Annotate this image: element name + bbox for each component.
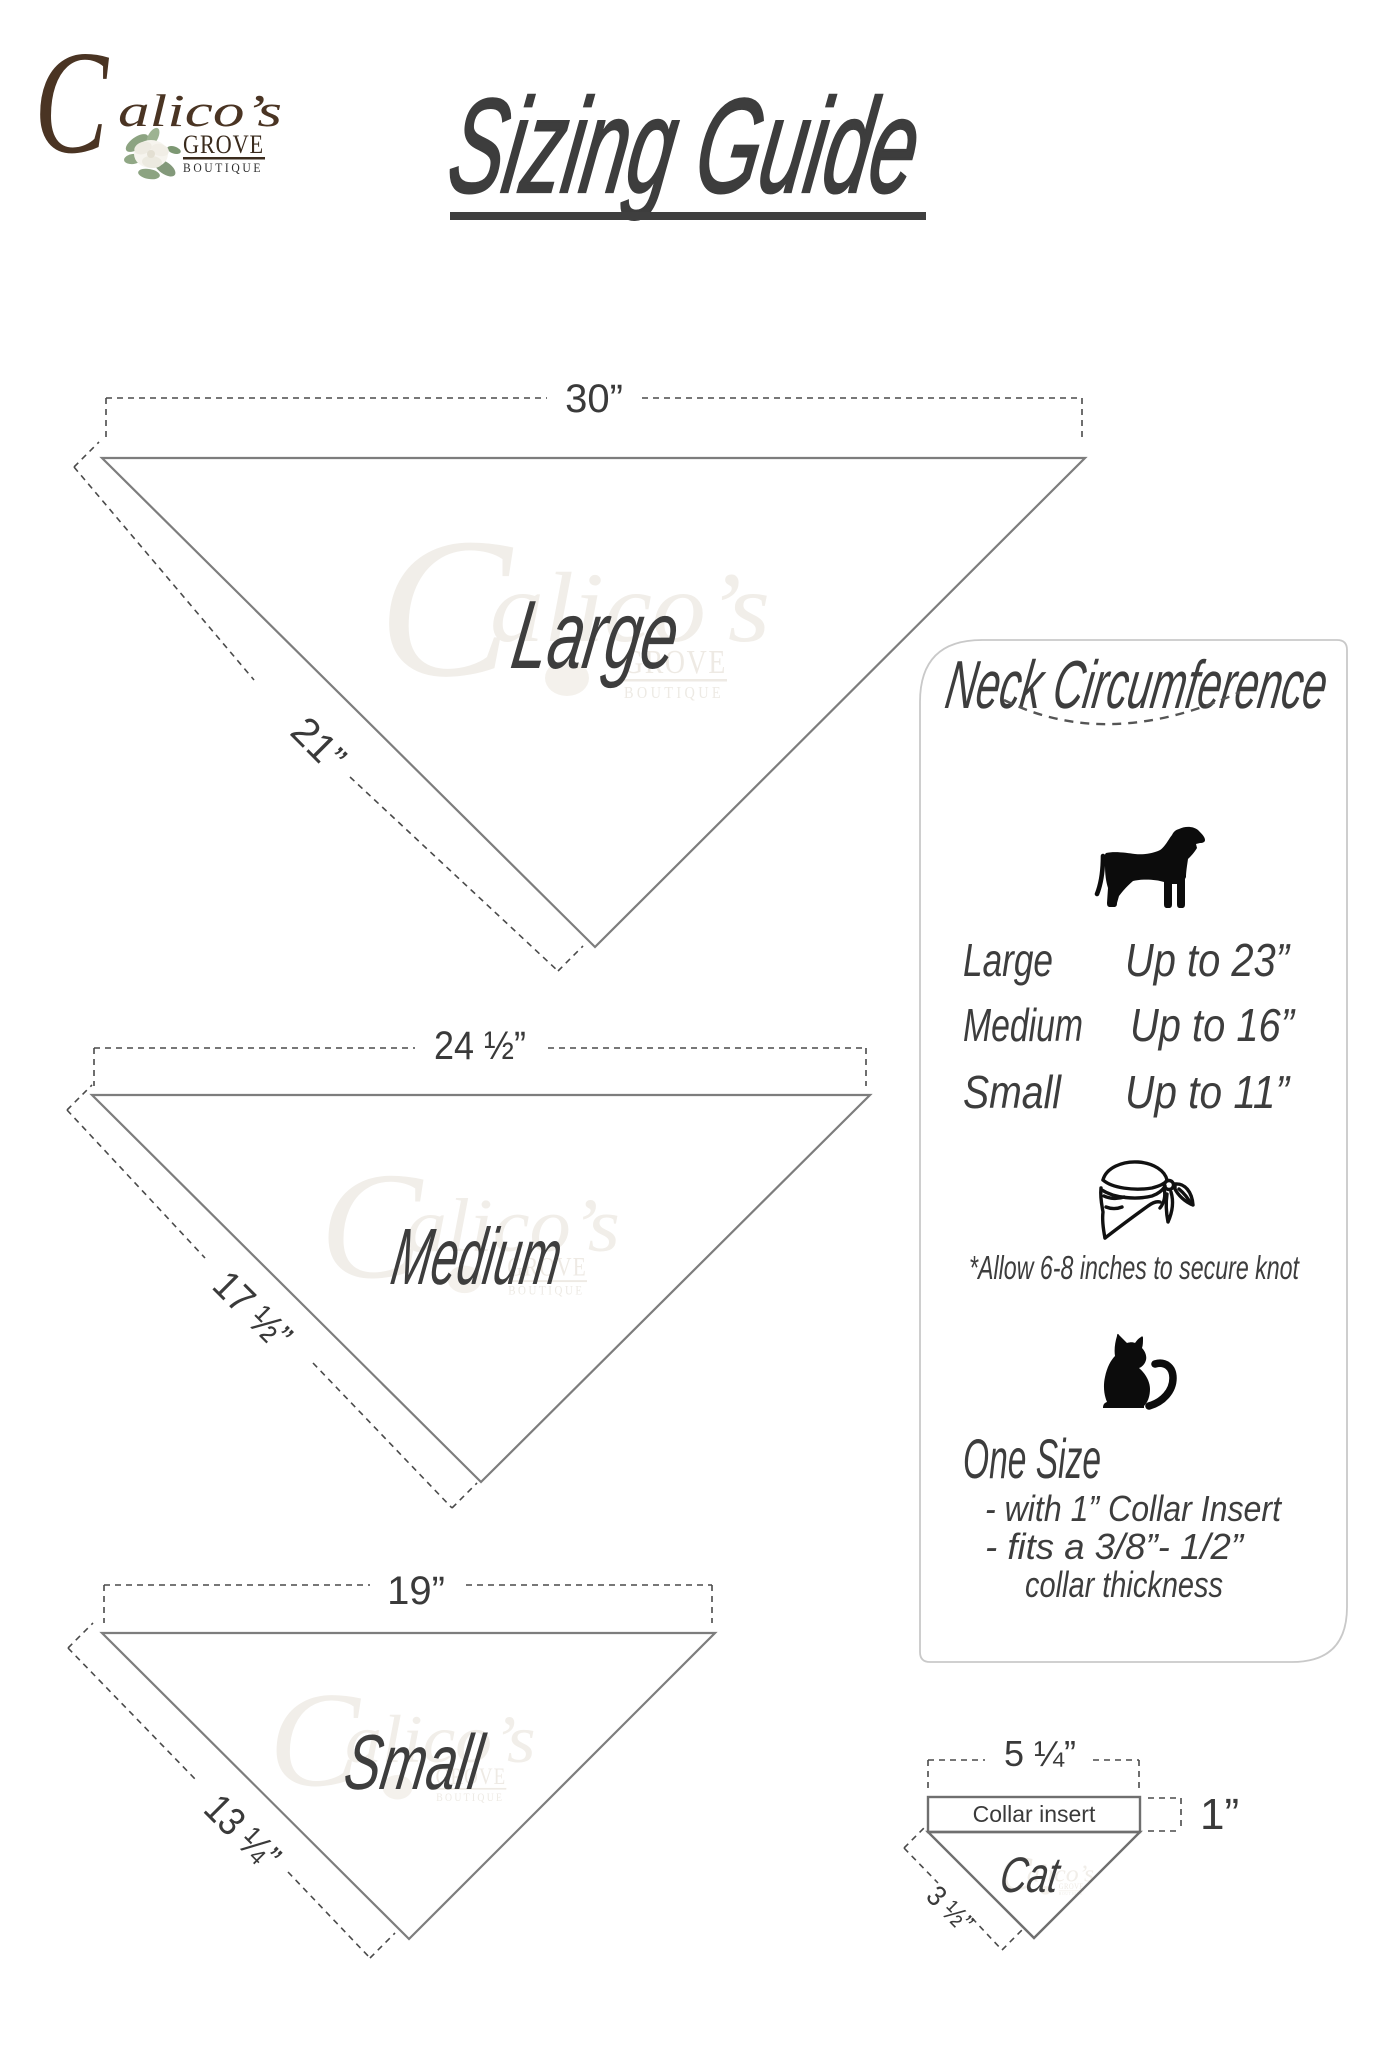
svg-text:alico’s: alico’s	[118, 85, 282, 136]
svg-text:Cat: Cat	[997, 1846, 1065, 1903]
svg-text:*Allow 6-8 inches to secure kn: *Allow 6-8 inches to secure knot	[969, 1249, 1300, 1286]
svg-text:19”: 19”	[387, 1569, 445, 1613]
svg-text:One Size: One Size	[963, 1427, 1101, 1490]
svg-text:Small: Small	[963, 1066, 1063, 1118]
svg-text:Neck Circumference: Neck Circumference	[941, 647, 1333, 723]
svg-text:Medium: Medium	[386, 1212, 568, 1301]
svg-text:Up to 11”: Up to 11”	[1125, 1066, 1291, 1118]
svg-text:Medium: Medium	[963, 999, 1083, 1051]
svg-text:BOUTIQUE: BOUTIQUE	[183, 161, 263, 175]
svg-text:Small: Small	[339, 1718, 491, 1805]
svg-text:Up to 23”: Up to 23”	[1125, 934, 1291, 986]
svg-text:Collar insert: Collar insert	[973, 1801, 1096, 1827]
svg-text:- fits a 3/8”- 1/2”: - fits a 3/8”- 1/2”	[985, 1526, 1245, 1567]
svg-text:5 ¼”: 5 ¼”	[1004, 1733, 1076, 1774]
svg-text:C: C	[34, 21, 110, 185]
svg-text:collar thickness: collar thickness	[1025, 1564, 1223, 1605]
svg-text:Sizing Guide: Sizing Guide	[440, 71, 930, 221]
svg-text:24 ½”: 24 ½”	[434, 1024, 526, 1068]
svg-text:30”: 30”	[565, 377, 623, 421]
svg-text:- with 1” Collar Insert: - with 1” Collar Insert	[985, 1488, 1283, 1529]
svg-text:Large: Large	[963, 934, 1053, 986]
svg-text:Up to 16”: Up to 16”	[1130, 999, 1296, 1051]
svg-text:GROVE: GROVE	[183, 130, 264, 159]
svg-text:Large: Large	[505, 581, 686, 689]
svg-text:1”: 1”	[1200, 1790, 1239, 1839]
